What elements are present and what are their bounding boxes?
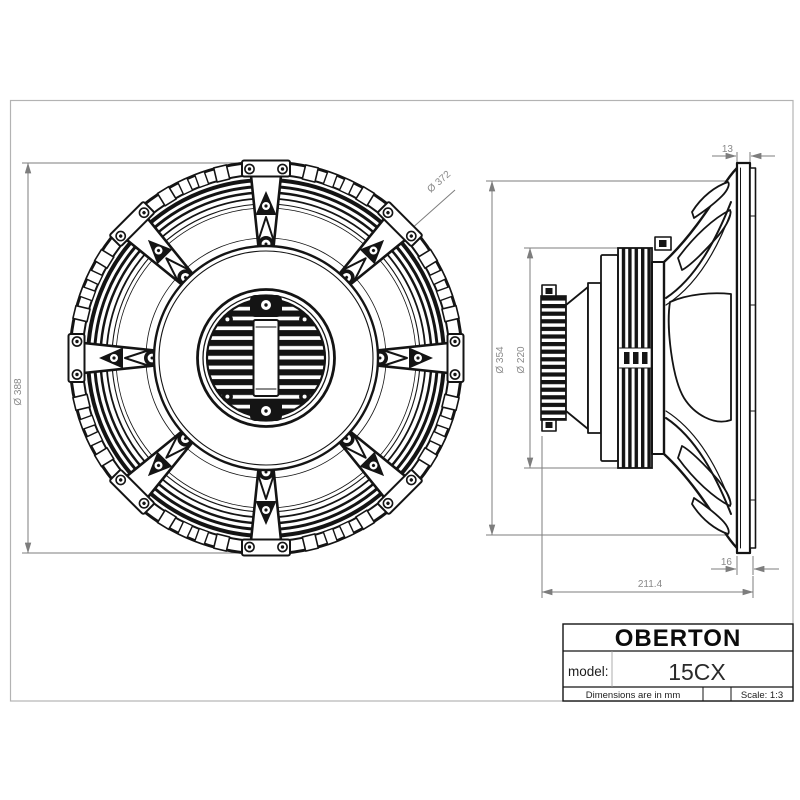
dimension-label-overall-diameter: Ø 388	[13, 378, 24, 406]
mounting-flange	[737, 163, 756, 553]
spoke	[250, 166, 282, 252]
front-view	[69, 161, 464, 556]
basket-profile	[664, 168, 737, 548]
model-label: model:	[568, 664, 609, 679]
front-gasket	[750, 168, 756, 548]
spoke	[74, 342, 160, 374]
dimension-flange-gasket: 16	[711, 556, 779, 575]
dimension-label-magnet-diameter: Ø 220	[516, 346, 527, 374]
magnet-front-plate	[652, 262, 664, 454]
phase-plug-slot	[254, 320, 279, 396]
driver-heatsink-fins	[541, 296, 566, 420]
model-value: 15CX	[668, 659, 726, 685]
dimension-label-flange-thickness: 13	[722, 144, 734, 155]
drawing-sheet: Ø 388 Ø 372 Ø 354 Ø 220 13 16 211.4	[0, 0, 800, 800]
coaxial-horn-heatsink	[198, 290, 335, 427]
technical-drawing: Ø 388 Ø 372 Ø 354 Ø 220 13 16 211.4	[0, 0, 800, 800]
title-block: OBERTON model: 15CX Dimensions are in mm…	[563, 624, 793, 701]
spoke	[372, 342, 458, 374]
scale-note: Scale: 1:3	[741, 690, 783, 701]
dimension-label-flange-gasket: 16	[721, 557, 733, 568]
dimension-label-total-depth: 211.4	[638, 579, 663, 590]
units-note: Dimensions are in mm	[586, 690, 681, 701]
spoke	[250, 464, 282, 550]
dimension-label-bolt-circle: Ø 372	[425, 169, 453, 196]
rear-driver	[541, 255, 618, 461]
brand-name: OBERTON	[615, 625, 742, 652]
dimension-label-basket-diameter: Ø 354	[495, 346, 506, 374]
side-view	[541, 163, 756, 553]
